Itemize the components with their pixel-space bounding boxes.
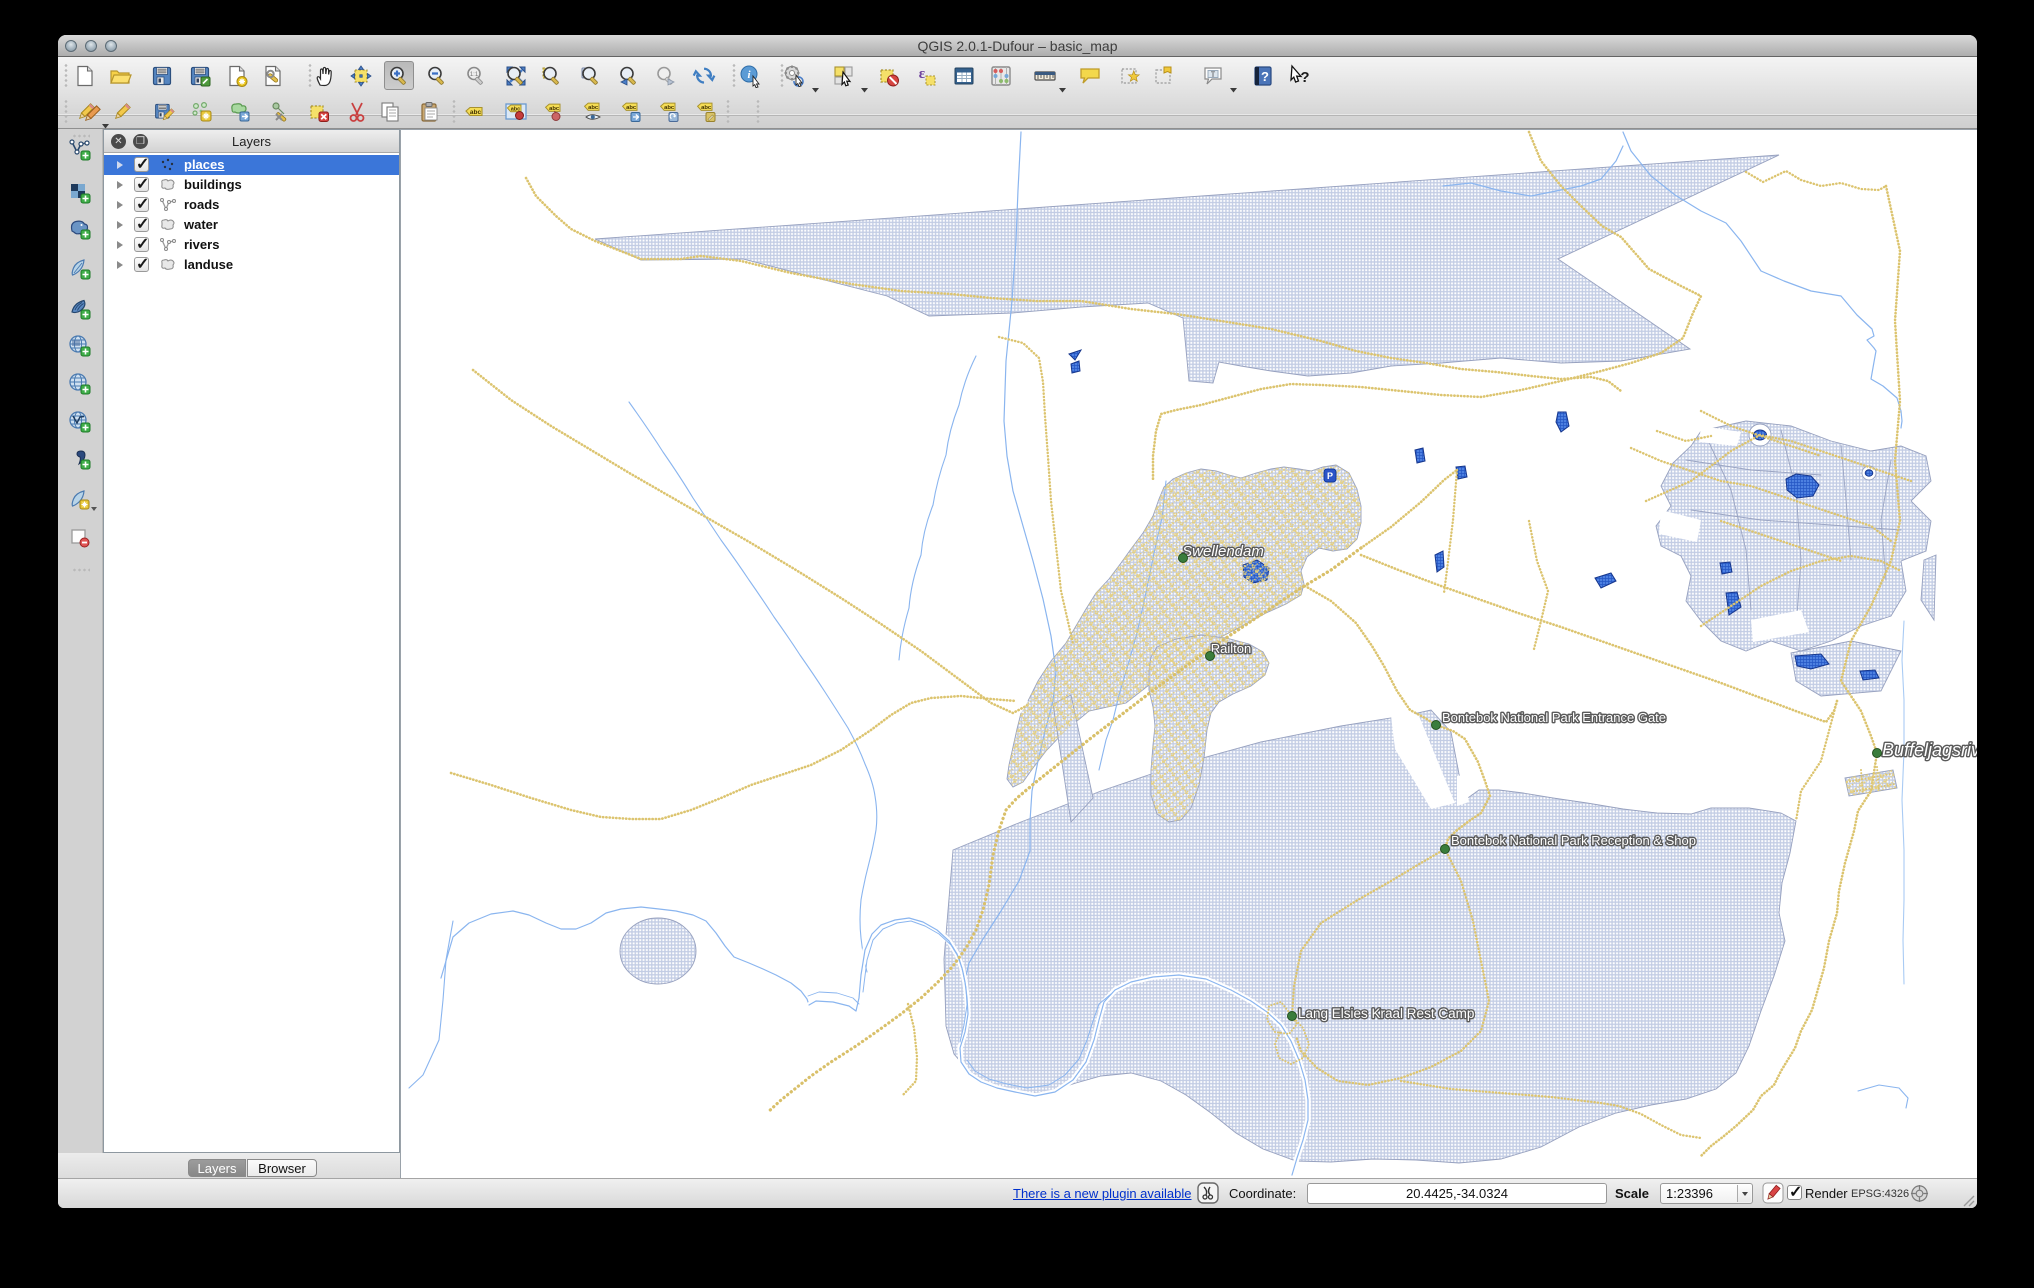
svg-text:T: T [1211, 71, 1216, 79]
svg-text:?: ? [1300, 69, 1309, 86]
svg-text:P: P [1327, 471, 1333, 481]
svg-text:Bontebok National Park Entranc: Bontebok National Park Entrance Gate [1442, 710, 1666, 725]
svg-text:?: ? [1261, 69, 1269, 84]
svg-text:abc: abc [664, 105, 675, 111]
svg-text:Buffeljagsrivier: Buffeljagsrivier [1882, 740, 1977, 760]
svg-text:abc: abc [588, 105, 599, 111]
svg-text:abc: abc [626, 105, 637, 111]
svg-text:Bontebok National Park Recepti: Bontebok National Park Reception & Shop [1451, 833, 1696, 848]
svg-text:abc: abc [470, 109, 482, 116]
svg-text:Railton: Railton [1211, 641, 1251, 656]
svg-text:ε: ε [919, 66, 926, 82]
svg-text:Lang Elsies Kraal Rest Camp: Lang Elsies Kraal Rest Camp [1298, 1006, 1474, 1021]
svg-text:1:1: 1:1 [470, 72, 479, 78]
svg-text:Swellendam: Swellendam [1182, 543, 1264, 560]
svg-text:abc: abc [701, 105, 712, 111]
